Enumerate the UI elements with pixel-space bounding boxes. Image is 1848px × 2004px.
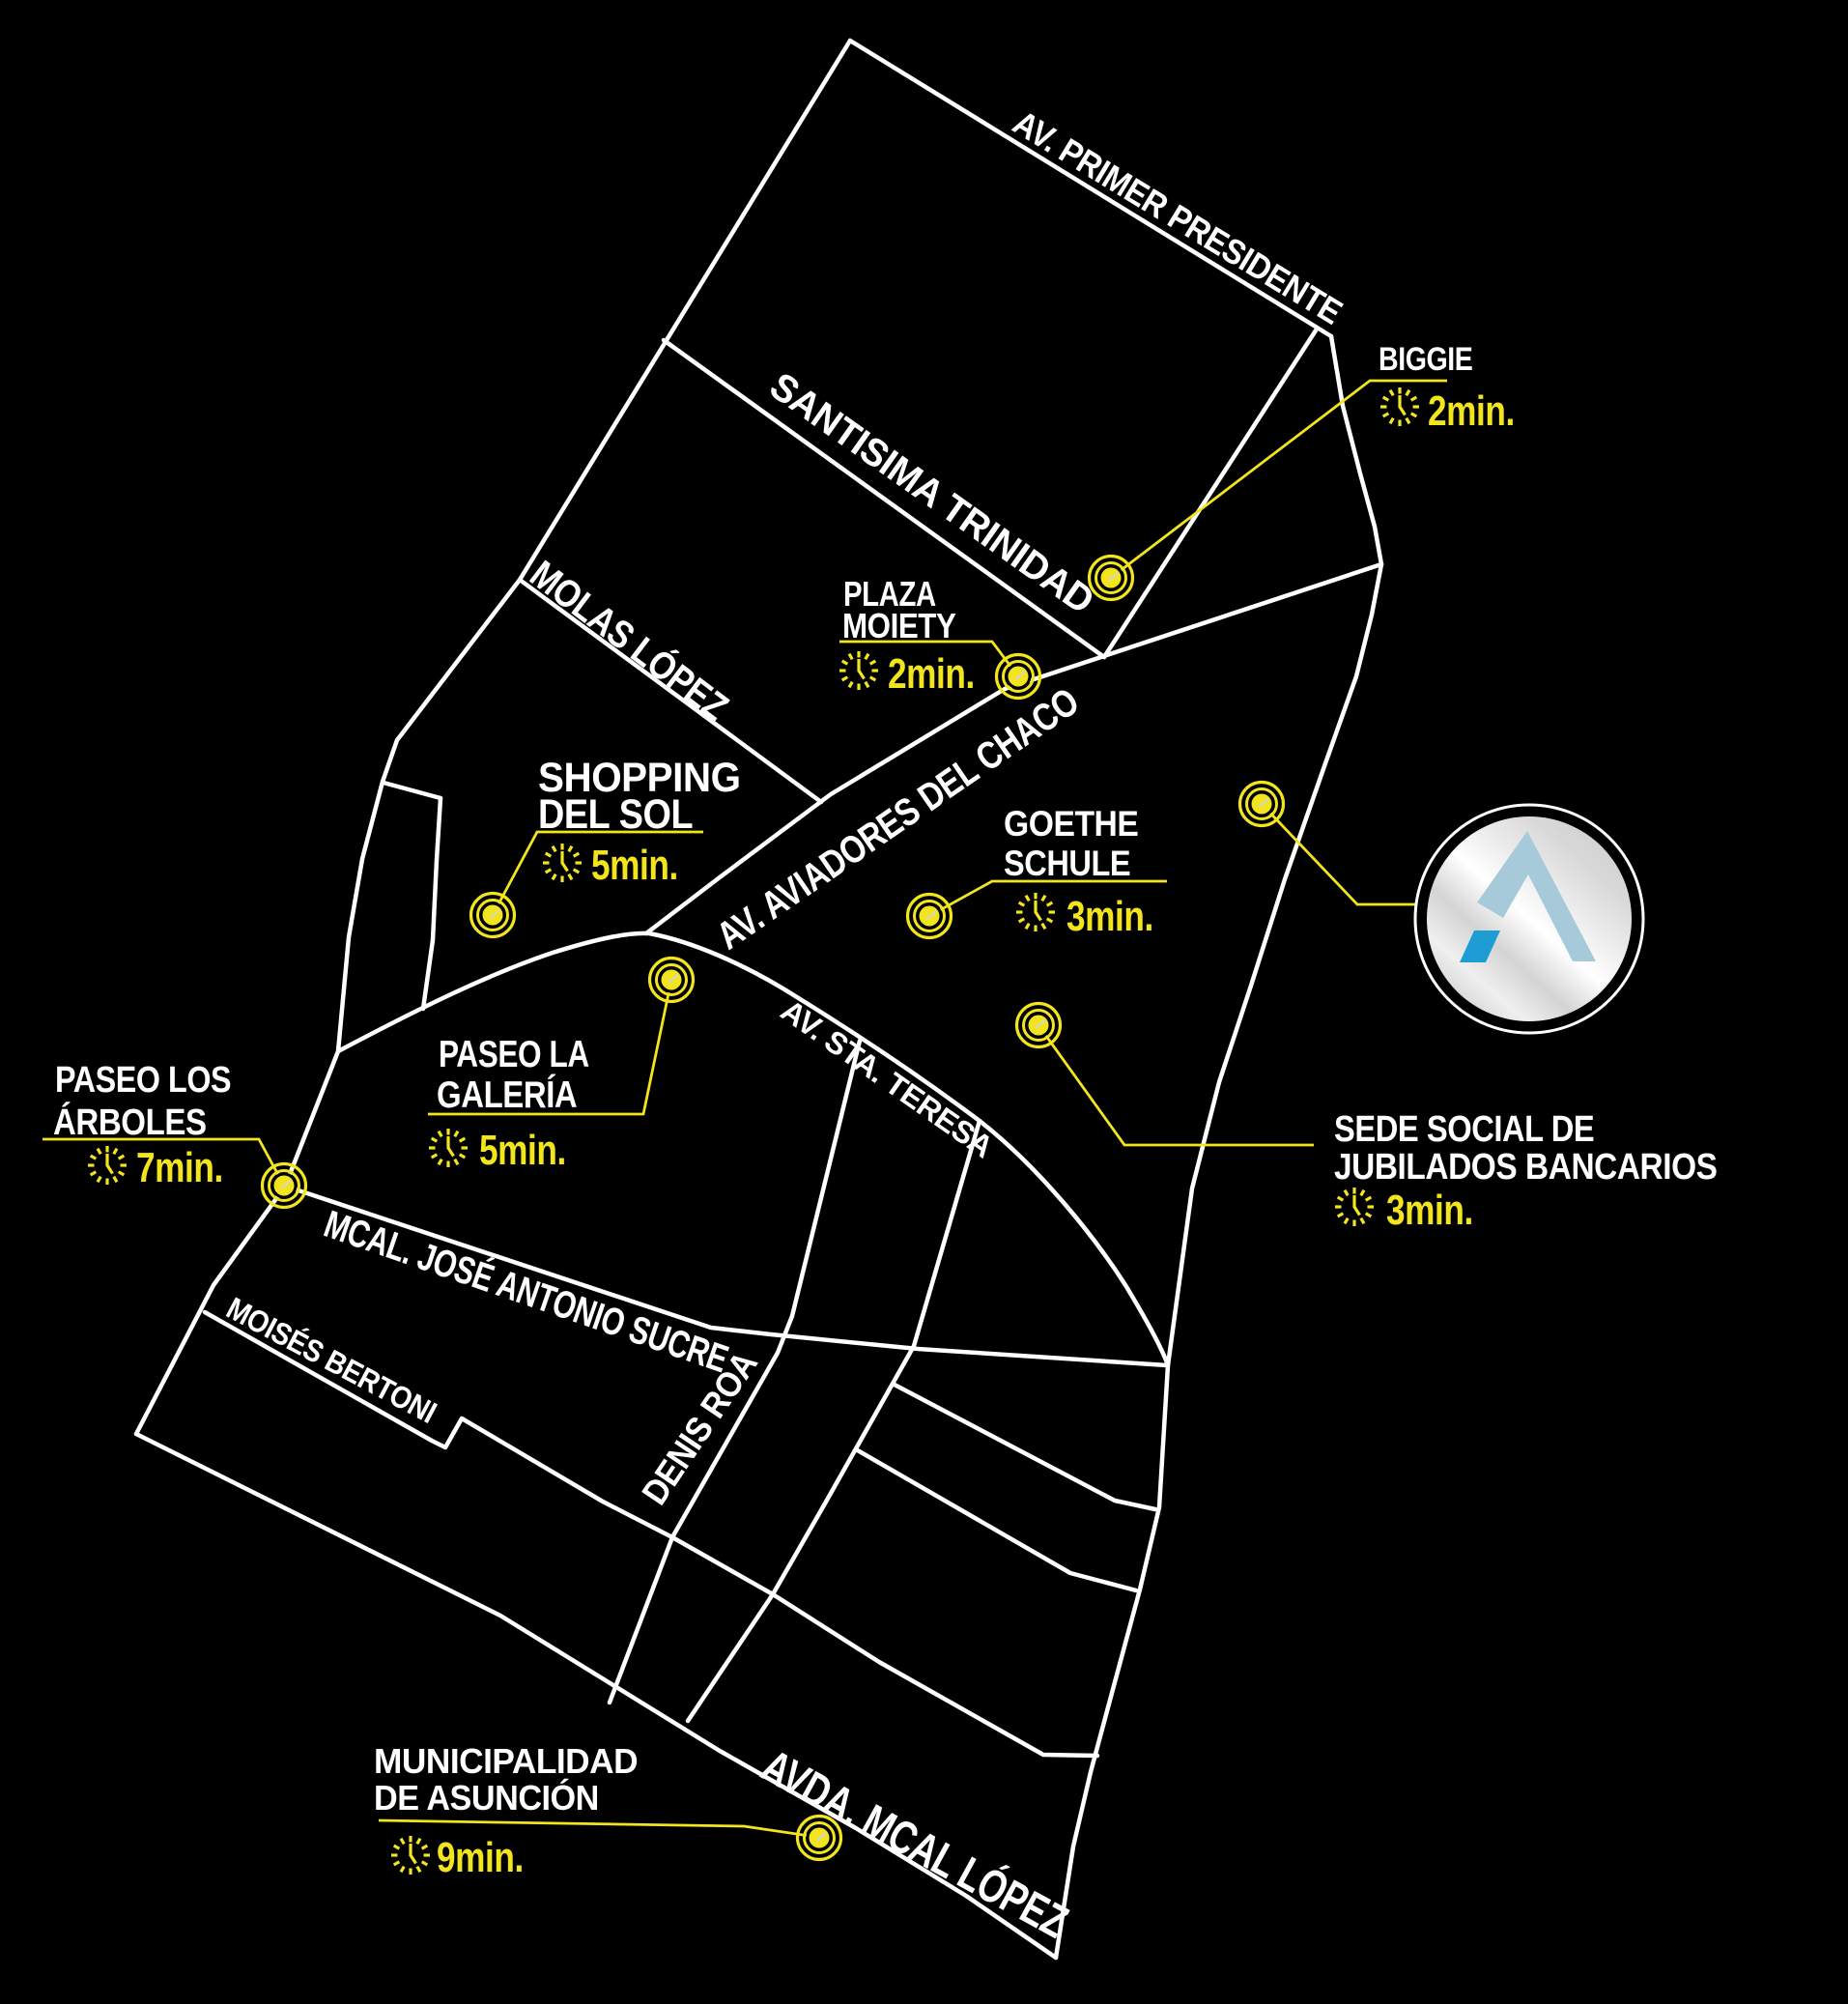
svg-text:GALERÍA: GALERÍA: [437, 1073, 578, 1115]
svg-text:MUNICIPALIDAD: MUNICIPALIDAD: [374, 1742, 638, 1781]
svg-text:DEL SOL: DEL SOL: [538, 790, 693, 838]
svg-text:JUBILADOS BANCARIOS: JUBILADOS BANCARIOS: [1334, 1146, 1718, 1187]
svg-text:BIGGIE: BIGGIE: [1379, 341, 1472, 378]
svg-text:3min.: 3min.: [1386, 1187, 1473, 1234]
svg-text:MOIETY: MOIETY: [842, 607, 955, 646]
svg-text:PASEO LA: PASEO LA: [439, 1033, 589, 1075]
svg-text:2min.: 2min.: [1428, 387, 1515, 435]
svg-text:3min.: 3min.: [1066, 893, 1153, 940]
svg-text:ÁRBOLES: ÁRBOLES: [53, 1102, 207, 1143]
svg-text:2min.: 2min.: [888, 650, 975, 698]
svg-text:PASEO LOS: PASEO LOS: [55, 1060, 231, 1101]
svg-text:5min.: 5min.: [591, 842, 678, 889]
svg-text:9min.: 9min.: [437, 1834, 524, 1881]
svg-text:DE ASUNCIÓN: DE ASUNCIÓN: [374, 1778, 599, 1818]
svg-text:GOETHE: GOETHE: [1004, 805, 1138, 845]
svg-text:SCHULE: SCHULE: [1004, 844, 1130, 883]
svg-text:5min.: 5min.: [479, 1127, 566, 1174]
svg-text:7min.: 7min.: [136, 1144, 223, 1191]
svg-text:SEDE SOCIAL DE: SEDE SOCIAL DE: [1334, 1108, 1594, 1150]
